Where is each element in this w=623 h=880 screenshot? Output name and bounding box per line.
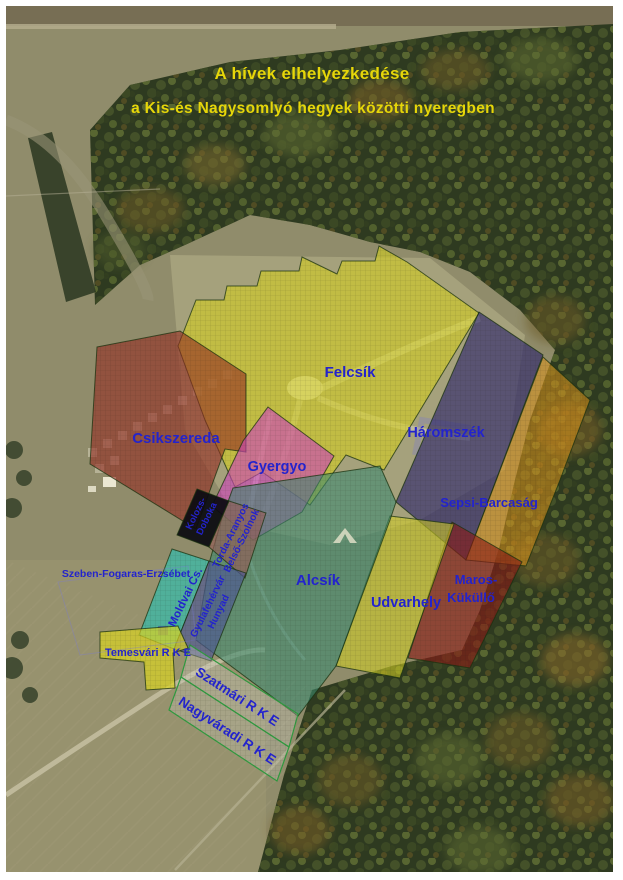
top-road-strip [6, 6, 613, 26]
label-maros-line1: Maros- [455, 572, 498, 587]
label-szeben: Szeben-Fogaras-Erzsébet [62, 568, 191, 580]
aerial-map-image: A hívek elhelyezkedése a Kis-és Nagysoml… [0, 0, 623, 880]
label-temesvari: Temesvári R K E [105, 647, 191, 659]
map-page: A hívek elhelyezkedése a Kis-és Nagysoml… [0, 0, 623, 880]
label-felcsik: Felcsík [325, 364, 377, 381]
label-haromszek: Háromszék [407, 425, 485, 441]
label-gyergyo: Gyergyo [248, 459, 307, 475]
label-udvarhely: Udvarhely [371, 595, 441, 611]
map-title-line1: A hívek elhelyezkedése [215, 64, 410, 83]
label-alcsik: Alcsík [296, 572, 341, 589]
label-sepsi-barcasag: Sepsi-Barcaság [440, 495, 538, 510]
map-title-line2: a Kis-és Nagysomlyó hegyek közötti nyere… [131, 100, 495, 117]
aerial-photo-background: A hívek elhelyezkedése a Kis-és Nagysoml… [1, 6, 614, 874]
label-maros-line2: Küküllő [447, 590, 495, 605]
label-csikszereda: Csikszereda [132, 430, 220, 447]
